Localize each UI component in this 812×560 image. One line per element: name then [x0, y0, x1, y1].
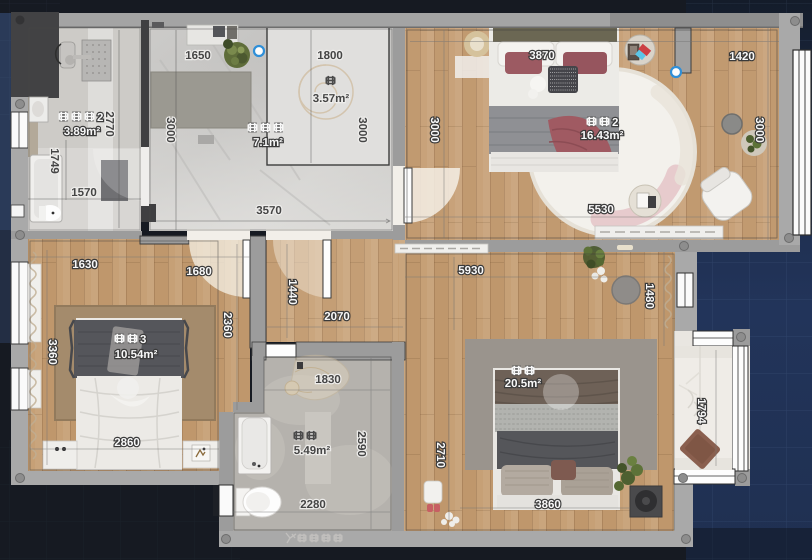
svg-text:3: 3: [140, 334, 146, 346]
svg-text:2280: 2280: [300, 499, 326, 511]
svg-text:2070: 2070: [324, 311, 350, 323]
svg-text:3870: 3870: [529, 50, 555, 62]
svg-text:1420: 1420: [729, 51, 755, 63]
svg-text:1749: 1749: [48, 148, 60, 174]
svg-text:3000: 3000: [164, 117, 176, 143]
svg-text:2590: 2590: [355, 431, 367, 457]
svg-text:1830: 1830: [315, 374, 341, 386]
svg-text:1480: 1480: [643, 283, 655, 309]
svg-text:3000: 3000: [356, 117, 368, 143]
svg-text:1570: 1570: [71, 187, 97, 199]
svg-text:2: 2: [612, 117, 618, 129]
svg-text:3000: 3000: [428, 117, 440, 143]
svg-text:1800: 1800: [317, 50, 343, 62]
svg-text:1630: 1630: [72, 259, 98, 271]
svg-text:2770: 2770: [103, 111, 115, 137]
svg-text:5930: 5930: [458, 265, 484, 277]
svg-text:3360: 3360: [46, 339, 58, 365]
svg-text:1680: 1680: [186, 266, 212, 278]
svg-text:3570: 3570: [256, 205, 282, 217]
svg-text:2860: 2860: [114, 437, 140, 449]
svg-text:3.89m²: 3.89m²: [64, 126, 101, 138]
svg-text:1794: 1794: [695, 398, 707, 424]
svg-text:7.1m²: 7.1m²: [253, 137, 283, 149]
svg-text:3000: 3000: [753, 117, 765, 143]
svg-text:16.43m²: 16.43m²: [581, 130, 624, 142]
svg-text:3.57m²: 3.57m²: [313, 93, 350, 105]
svg-text:3860: 3860: [535, 499, 561, 511]
svg-text:20.5m²: 20.5m²: [505, 378, 542, 390]
svg-text:5.49m²: 5.49m²: [294, 445, 331, 457]
svg-text:2710: 2710: [434, 442, 446, 468]
svg-text:2360: 2360: [221, 312, 233, 338]
svg-text:1440: 1440: [286, 279, 298, 305]
svg-text:5530: 5530: [588, 204, 614, 216]
svg-text:10.54m²: 10.54m²: [115, 349, 158, 361]
svg-text:2: 2: [97, 112, 103, 124]
svg-text:1650: 1650: [185, 50, 211, 62]
